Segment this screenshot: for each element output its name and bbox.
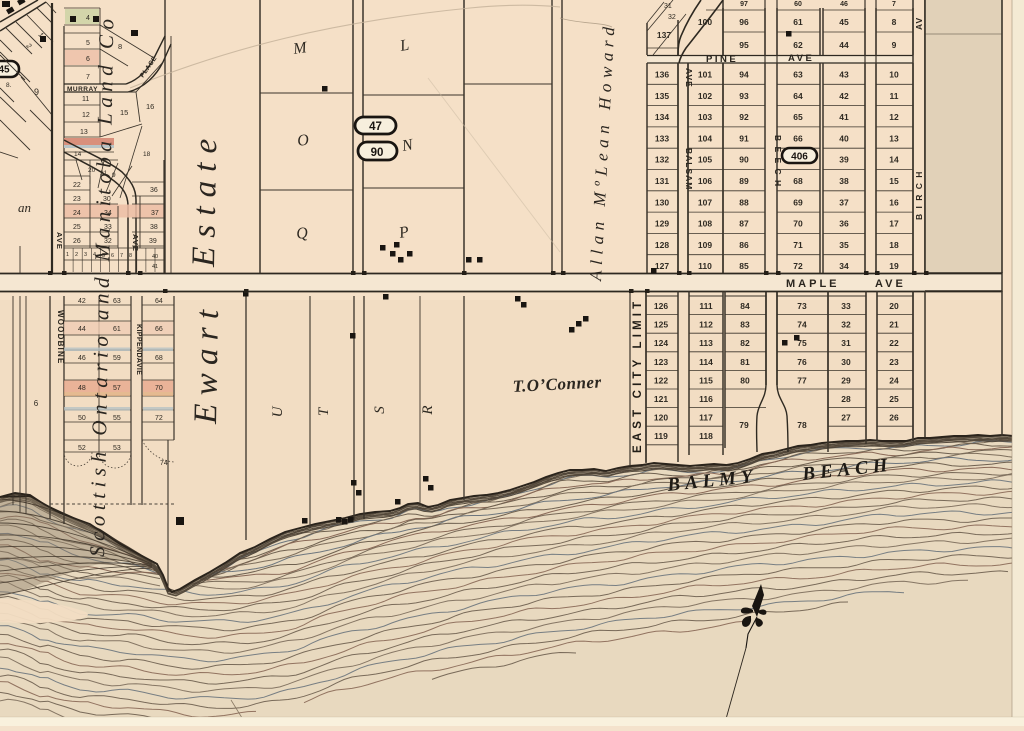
svg-text:36: 36 [150, 187, 158, 194]
svg-text:22: 22 [889, 338, 899, 348]
svg-text:40: 40 [152, 254, 158, 260]
svg-text:110: 110 [698, 261, 712, 271]
svg-text:72: 72 [793, 261, 803, 271]
svg-text:AVE: AVE [131, 234, 140, 252]
svg-text:66: 66 [793, 133, 803, 143]
svg-text:26: 26 [889, 413, 899, 423]
svg-text:24: 24 [73, 210, 81, 217]
svg-text:15: 15 [120, 108, 128, 117]
svg-text:136: 136 [655, 70, 669, 80]
svg-text:46: 46 [840, 1, 848, 8]
svg-text:22: 22 [73, 182, 81, 189]
svg-text:35: 35 [839, 240, 849, 250]
svg-text:28: 28 [841, 394, 851, 404]
svg-text:42: 42 [839, 91, 849, 101]
svg-text:37: 37 [839, 197, 849, 207]
svg-text:6: 6 [34, 399, 39, 408]
svg-text:16: 16 [146, 102, 154, 111]
svg-text:KIPPENDAVIE: KIPPENDAVIE [135, 324, 142, 375]
svg-text:130: 130 [655, 197, 669, 207]
svg-text:9: 9 [34, 87, 39, 97]
svg-text:132: 132 [655, 155, 669, 165]
svg-text:MAPLE: MAPLE [786, 278, 840, 290]
svg-text:77: 77 [797, 375, 807, 385]
svg-text:59: 59 [113, 355, 121, 362]
svg-text:68: 68 [155, 355, 163, 362]
svg-text:45: 45 [0, 65, 10, 76]
svg-text:121: 121 [654, 394, 668, 404]
svg-text:61: 61 [113, 326, 121, 333]
svg-text:8: 8 [118, 42, 122, 51]
svg-text:129: 129 [655, 219, 669, 229]
svg-text:41: 41 [839, 112, 849, 122]
svg-text:12: 12 [82, 112, 90, 119]
svg-text:26: 26 [73, 238, 81, 245]
svg-text:PINE: PINE [706, 54, 738, 65]
svg-text:101: 101 [698, 70, 712, 80]
svg-text:108: 108 [698, 219, 712, 229]
svg-text:39: 39 [839, 155, 849, 165]
svg-text:92: 92 [739, 112, 749, 122]
svg-text:R: R [420, 405, 436, 415]
svg-text:53: 53 [113, 445, 121, 452]
svg-text:18: 18 [143, 151, 151, 158]
svg-text:87: 87 [739, 219, 749, 229]
svg-text:104: 104 [698, 133, 712, 143]
svg-text:85: 85 [739, 261, 749, 271]
svg-text:3: 3 [84, 252, 87, 258]
svg-text:69: 69 [793, 197, 803, 207]
svg-text:97: 97 [740, 1, 748, 8]
svg-text:124: 124 [654, 338, 668, 348]
svg-text:38: 38 [839, 176, 849, 186]
svg-text:18: 18 [889, 240, 899, 250]
svg-text:66: 66 [155, 326, 163, 333]
svg-text:S: S [372, 406, 388, 414]
svg-text:116: 116 [699, 394, 713, 404]
svg-text:16: 16 [889, 197, 899, 207]
svg-text:WOODBINE: WOODBINE [56, 310, 65, 365]
svg-text:33: 33 [841, 301, 851, 311]
svg-text:46: 46 [78, 355, 86, 362]
svg-text:60: 60 [794, 1, 802, 8]
svg-text:15: 15 [889, 176, 899, 186]
svg-text:13: 13 [80, 129, 88, 136]
svg-text:68: 68 [793, 176, 803, 186]
svg-text:AVE: AVE [55, 232, 64, 250]
svg-text:43: 43 [839, 70, 849, 80]
svg-text:61: 61 [793, 17, 803, 27]
svg-text:109: 109 [698, 240, 712, 250]
svg-text:89: 89 [739, 176, 749, 186]
svg-text:63: 63 [113, 298, 121, 305]
svg-text:5: 5 [86, 40, 90, 47]
svg-text:125: 125 [654, 320, 668, 330]
svg-text:114: 114 [699, 357, 713, 367]
svg-text:25: 25 [73, 224, 81, 231]
svg-text:128: 128 [655, 240, 669, 250]
svg-text:23: 23 [73, 196, 81, 203]
svg-text:44: 44 [839, 40, 849, 50]
svg-text:90: 90 [739, 155, 749, 165]
svg-text:90: 90 [371, 147, 384, 159]
svg-text:70: 70 [793, 219, 803, 229]
svg-text:B I R C H: B I R C H [914, 170, 924, 220]
svg-text:AVE: AVE [788, 53, 814, 64]
svg-text:8: 8 [892, 17, 897, 27]
svg-text:107: 107 [698, 197, 712, 207]
svg-text:100: 100 [698, 17, 712, 27]
svg-text:25: 25 [889, 394, 899, 404]
svg-text:11: 11 [82, 96, 89, 103]
svg-text:86: 86 [739, 240, 749, 250]
svg-text:80: 80 [740, 375, 750, 385]
svg-text:112: 112 [699, 320, 713, 330]
svg-text:105: 105 [698, 155, 712, 165]
svg-text:32: 32 [841, 320, 851, 330]
svg-text:7: 7 [120, 253, 123, 259]
svg-text:106: 106 [698, 176, 712, 186]
svg-text:31: 31 [664, 3, 672, 10]
svg-text:78: 78 [797, 420, 807, 430]
svg-text:94: 94 [739, 70, 749, 80]
svg-text:103: 103 [698, 112, 712, 122]
svg-text:52: 52 [78, 445, 86, 452]
svg-text:8: 8 [129, 253, 132, 259]
svg-text:34: 34 [839, 261, 849, 271]
svg-text:122: 122 [654, 375, 668, 385]
svg-text:29: 29 [841, 375, 851, 385]
svg-text:27: 27 [841, 413, 851, 423]
svg-text:119: 119 [654, 431, 668, 441]
svg-text:406: 406 [791, 152, 808, 163]
svg-text:64: 64 [793, 91, 803, 101]
svg-text:39: 39 [149, 238, 157, 245]
svg-text:B E E C H: B E E C H [773, 135, 783, 188]
svg-text:72: 72 [155, 415, 163, 422]
svg-text:64: 64 [155, 298, 163, 305]
svg-text:117: 117 [699, 413, 713, 423]
svg-text:82: 82 [740, 338, 750, 348]
svg-text:32: 32 [668, 14, 676, 21]
svg-text:17: 17 [889, 219, 899, 229]
svg-text:73: 73 [797, 301, 807, 311]
svg-text:120: 120 [654, 413, 668, 423]
svg-text:48: 48 [78, 385, 86, 392]
svg-text:47: 47 [369, 121, 382, 133]
svg-text:83: 83 [740, 320, 750, 330]
svg-text:123: 123 [654, 357, 668, 367]
svg-text:96: 96 [739, 17, 749, 27]
svg-text:21: 21 [889, 320, 899, 330]
svg-text:71: 71 [793, 240, 803, 250]
svg-text:40: 40 [839, 133, 849, 143]
svg-text:4: 4 [86, 15, 90, 22]
svg-text:31: 31 [841, 338, 851, 348]
svg-text:1: 1 [66, 252, 69, 258]
svg-text:118: 118 [699, 431, 713, 441]
svg-text:62: 62 [793, 40, 803, 50]
svg-text:127: 127 [655, 261, 669, 271]
svg-text:57: 57 [113, 385, 121, 392]
svg-text:45: 45 [839, 17, 849, 27]
svg-text:10: 10 [889, 70, 899, 80]
svg-text:8.: 8. [6, 82, 12, 89]
svg-text:74: 74 [160, 460, 168, 467]
svg-text:19: 19 [889, 261, 899, 271]
svg-text:102: 102 [698, 91, 712, 101]
svg-text:84: 84 [740, 301, 750, 311]
svg-text:93: 93 [739, 91, 749, 101]
svg-text:113: 113 [699, 338, 713, 348]
svg-text:6: 6 [86, 56, 90, 63]
svg-text:AVE: AVE [684, 68, 694, 88]
svg-text:111: 111 [699, 301, 713, 311]
svg-text:126: 126 [654, 301, 668, 311]
svg-text:14: 14 [74, 151, 82, 158]
svg-text:95: 95 [739, 40, 749, 50]
svg-text:91: 91 [739, 133, 749, 143]
svg-text:88: 88 [739, 197, 749, 207]
svg-text:AVE: AVE [875, 278, 906, 290]
svg-text:131: 131 [655, 176, 669, 186]
svg-text:38: 38 [150, 224, 158, 231]
svg-text:2: 2 [75, 252, 78, 258]
svg-text:133: 133 [655, 133, 669, 143]
svg-text:13: 13 [889, 133, 899, 143]
svg-text:74: 74 [797, 320, 807, 330]
svg-text:9: 9 [892, 40, 897, 50]
svg-text:41: 41 [152, 264, 158, 270]
svg-text:U: U [270, 405, 286, 417]
svg-text:81: 81 [740, 357, 750, 367]
svg-text:37: 37 [151, 210, 159, 217]
svg-text:12: 12 [889, 112, 899, 122]
svg-text:an: an [18, 200, 31, 215]
svg-text:42: 42 [78, 298, 86, 305]
svg-text:63: 63 [793, 70, 803, 80]
svg-text:76: 76 [797, 357, 807, 367]
svg-text:135: 135 [655, 91, 669, 101]
svg-text:23: 23 [889, 357, 899, 367]
svg-text:14: 14 [889, 155, 899, 165]
svg-text:7: 7 [86, 74, 90, 81]
svg-text:7: 7 [892, 1, 896, 8]
svg-text:36: 36 [839, 219, 849, 229]
svg-text:BALSAM: BALSAM [684, 148, 694, 190]
svg-text:AV: AV [914, 17, 924, 30]
svg-text:70: 70 [155, 385, 163, 392]
svg-text:20: 20 [889, 301, 899, 311]
svg-text:115: 115 [699, 375, 713, 385]
svg-text:11: 11 [890, 91, 899, 101]
svg-text:79: 79 [739, 420, 749, 430]
svg-text:24: 24 [889, 375, 899, 385]
svg-text:44: 44 [78, 326, 86, 333]
svg-text:55: 55 [113, 415, 121, 422]
svg-text:134: 134 [655, 112, 669, 122]
svg-text:30: 30 [841, 357, 851, 367]
svg-text:50: 50 [78, 415, 86, 422]
svg-text:65: 65 [793, 112, 803, 122]
